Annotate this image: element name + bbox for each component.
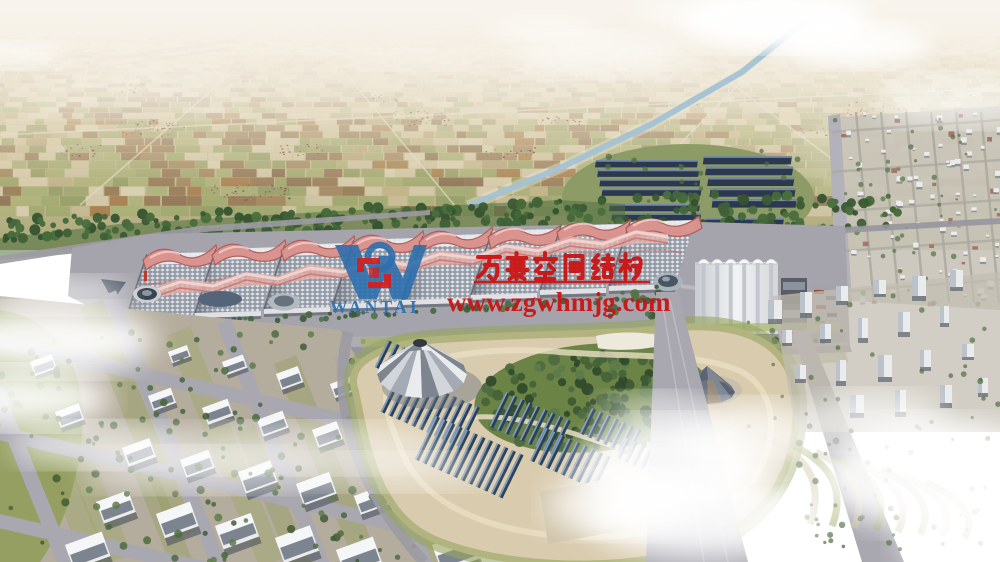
svg-text:www.zgwhmjg.com: www.zgwhmjg.com <box>447 287 671 317</box>
svg-text:WANTAI: WANTAI <box>330 297 420 317</box>
